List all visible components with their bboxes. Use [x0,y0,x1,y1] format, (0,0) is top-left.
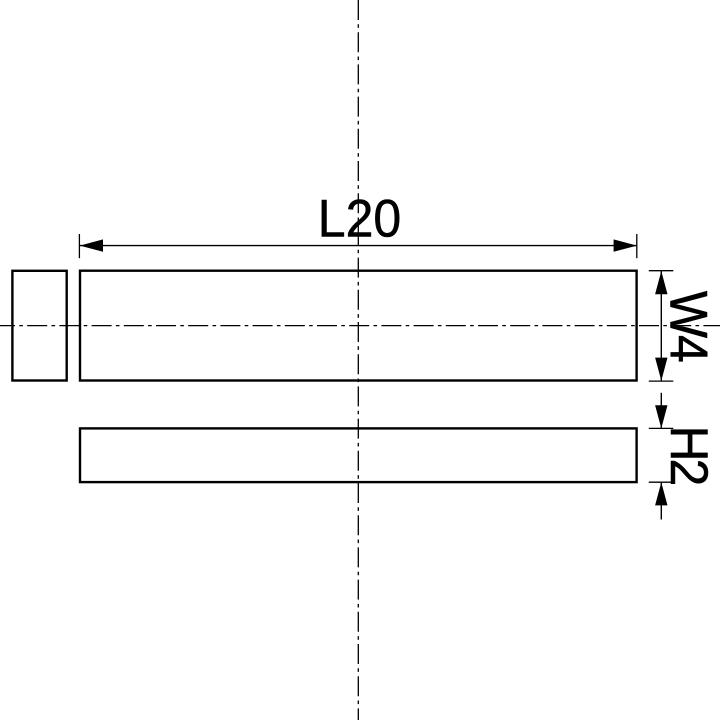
svg-text:W4: W4 [659,291,717,362]
svg-text:L20: L20 [318,188,401,248]
svg-text:H2: H2 [660,425,718,483]
